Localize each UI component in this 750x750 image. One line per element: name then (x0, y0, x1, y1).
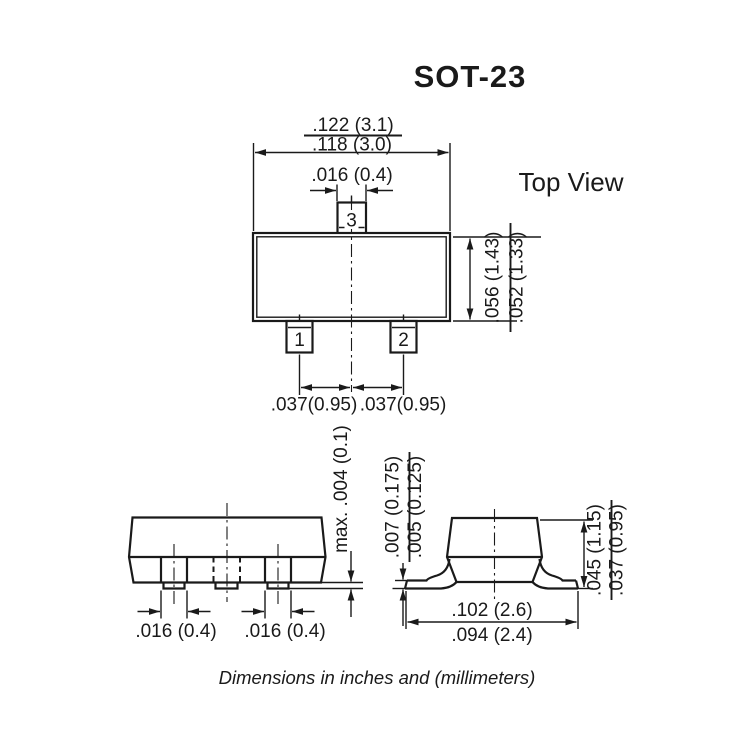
dim-body-width-max: .122 (3.1) (312, 115, 393, 136)
lead-tip (405, 581, 407, 589)
gullwing-lead-bottom (405, 582, 457, 589)
dim-lead-width-left: .016 (0.4) (135, 621, 216, 642)
dim-height-min: .037 (0.95) (607, 504, 628, 596)
dim-span-max: .102 (2.6) (451, 600, 532, 621)
dim-height-max: .045 (1.15) (585, 504, 606, 596)
dim-span-min: .094 (2.4) (451, 625, 532, 646)
side-view: .007 (0.175) .005 (0.125) .045 (1.15) .0… (383, 452, 628, 646)
dim-body-depth-max: .056 (1.43) (483, 232, 504, 324)
top-view: .122 (3.1) .118 (3.0) .016 (0.4) 3 1 2 (253, 115, 541, 416)
lead-tip (576, 581, 578, 589)
front-view: max. .004 (0.1) .016 (0.4) .016 (0.4) (129, 425, 363, 642)
gullwing-lead-outer (540, 559, 577, 581)
dim-lead-thickness-min: .005 (0.125) (405, 456, 426, 558)
dim-pin3-width: .016 (0.4) (311, 165, 392, 186)
top-view-label: Top View (518, 167, 623, 197)
pin2-label: 2 (398, 330, 409, 351)
dim-lead-thickness-max: .007 (0.175) (383, 456, 404, 558)
page-title: SOT-23 (414, 59, 527, 94)
gullwing-lead-bottom (533, 582, 579, 589)
pin1-label: 1 (294, 330, 305, 351)
sot23-dimension-drawing: SOT-23 Top View .122 (3.1) .118 (3.0) .0… (0, 0, 750, 750)
units-caption: Dimensions in inches and (millimeters) (219, 667, 536, 688)
gullwing-lead-outer (407, 559, 450, 581)
dim-pitch-left: .037(0.95) (271, 395, 358, 416)
dim-lead-width-right: .016 (0.4) (244, 621, 325, 642)
dim-pitch-right: .037(0.95) (360, 395, 447, 416)
drawing-canvas: SOT-23 Top View .122 (3.1) .118 (3.0) .0… (0, 0, 750, 750)
dim-standoff: max. .004 (0.1) (331, 425, 352, 553)
dim-body-depth-min: .052 (1.33) (507, 232, 528, 324)
pin3-label: 3 (346, 211, 357, 232)
